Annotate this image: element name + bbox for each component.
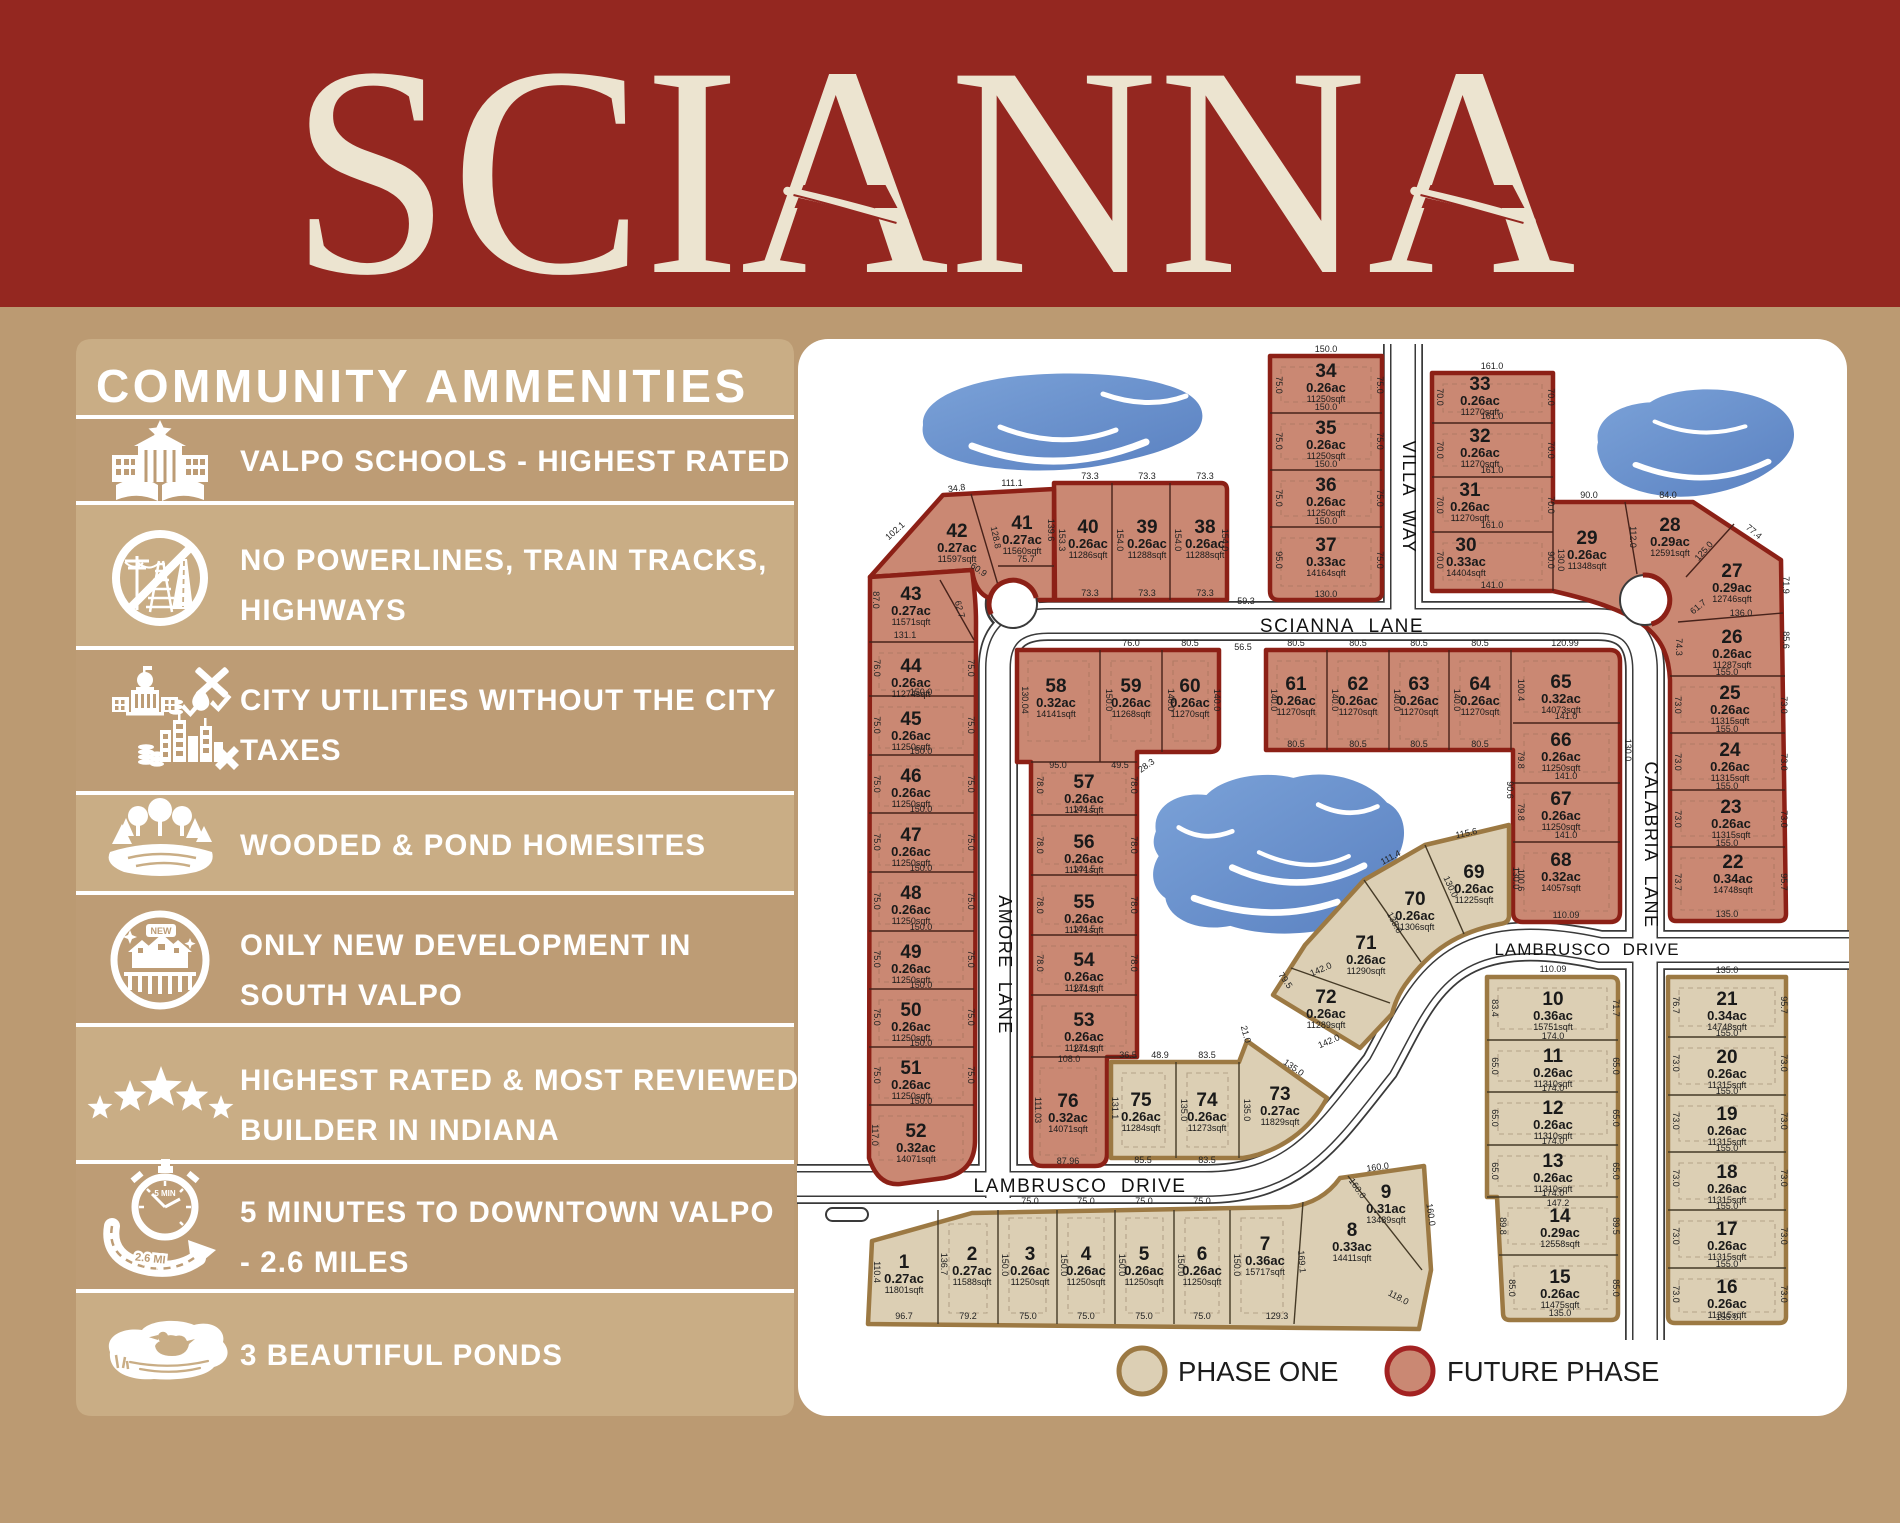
svg-text:73.7: 73.7 (1673, 873, 1683, 891)
svg-text:169.1: 169.1 (1296, 1250, 1308, 1273)
svg-text:150.0: 150.0 (1315, 402, 1338, 412)
svg-text:0.26ac: 0.26ac (1187, 1109, 1227, 1124)
svg-text:15: 15 (1549, 1267, 1571, 1288)
svg-text:62: 62 (1347, 674, 1368, 695)
svg-text:73.0: 73.0 (1779, 753, 1789, 771)
svg-text:32: 32 (1469, 426, 1490, 447)
svg-text:0.26ac: 0.26ac (891, 902, 931, 917)
svg-text:75.0: 75.0 (966, 1066, 976, 1084)
svg-text:49.5: 49.5 (1111, 760, 1129, 770)
svg-text:73.0: 73.0 (1671, 1054, 1681, 1072)
svg-text:CALABRIA LANE: CALABRIA LANE (1641, 761, 1661, 928)
svg-text:135.0: 135.0 (1242, 1099, 1252, 1122)
svg-text:155.0: 155.0 (1716, 781, 1739, 791)
svg-text:150.0: 150.0 (910, 980, 933, 990)
svg-text:80.5: 80.5 (1287, 739, 1305, 749)
svg-text:0.26ac: 0.26ac (1533, 1065, 1573, 1080)
svg-text:155.0: 155.0 (1716, 724, 1739, 734)
svg-text:0.33ac: 0.33ac (1306, 554, 1346, 569)
svg-text:11250sqft: 11250sqft (1011, 1277, 1050, 1287)
svg-text:0.26ac: 0.26ac (1710, 702, 1750, 717)
svg-text:75.0: 75.0 (966, 950, 976, 968)
svg-text:10: 10 (1542, 989, 1563, 1010)
svg-text:5: 5 (1139, 1244, 1150, 1265)
svg-text:130.0: 130.0 (1315, 589, 1338, 599)
svg-text:12746sqft: 12746sqft (1712, 594, 1752, 604)
svg-text:141.0: 141.0 (1555, 771, 1578, 781)
svg-text:110.09: 110.09 (1540, 964, 1567, 974)
svg-text:38: 38 (1194, 517, 1215, 538)
svg-text:139.6: 139.6 (1046, 519, 1056, 542)
svg-text:90.6: 90.6 (1505, 781, 1515, 799)
svg-text:12558sqft: 12558sqft (1540, 1239, 1580, 1249)
svg-text:76: 76 (1057, 1091, 1078, 1112)
svg-text:25: 25 (1719, 683, 1741, 704)
svg-text:65.0: 65.0 (1611, 1109, 1621, 1127)
svg-text:14057sqft: 14057sqft (1541, 883, 1581, 893)
svg-text:11829sqft: 11829sqft (1261, 1117, 1300, 1127)
svg-text:75.0: 75.0 (1135, 1196, 1153, 1206)
svg-text:150.0: 150.0 (910, 746, 933, 756)
svg-text:78.0: 78.0 (1129, 836, 1139, 854)
svg-text:3: 3 (1025, 1244, 1036, 1265)
svg-text:131.1: 131.1 (894, 630, 917, 640)
svg-text:45: 45 (900, 709, 922, 730)
svg-text:140.0: 140.0 (1212, 689, 1222, 712)
svg-text:120.99: 120.99 (1551, 638, 1579, 648)
svg-text:161.0: 161.0 (1481, 465, 1504, 475)
svg-text:11250sqft: 11250sqft (1125, 1277, 1164, 1287)
svg-text:8: 8 (1347, 1220, 1358, 1241)
svg-text:11225sqft: 11225sqft (1455, 895, 1494, 905)
svg-text:18: 18 (1716, 1162, 1737, 1183)
svg-text:75.0: 75.0 (1019, 1311, 1037, 1321)
svg-text:90.0: 90.0 (1580, 490, 1598, 500)
svg-text:44: 44 (900, 656, 922, 677)
svg-text:154.0: 154.0 (1220, 529, 1230, 552)
svg-text:150.0: 150.0 (1059, 1254, 1069, 1277)
svg-text:14404sqft: 14404sqft (1446, 568, 1486, 578)
svg-text:150.0: 150.0 (910, 687, 933, 697)
svg-text:0.26ac: 0.26ac (1010, 1263, 1050, 1278)
svg-text:73.0: 73.0 (1779, 1169, 1789, 1187)
svg-text:14071sqft: 14071sqft (896, 1154, 936, 1164)
svg-text:70.0: 70.0 (1435, 388, 1445, 406)
svg-text:140.0: 140.0 (1392, 689, 1402, 712)
svg-text:11588sqft: 11588sqft (953, 1277, 992, 1287)
svg-text:52: 52 (905, 1121, 926, 1142)
svg-text:64: 64 (1469, 674, 1491, 695)
svg-text:75.0: 75.0 (872, 1008, 882, 1026)
svg-text:108.0: 108.0 (1058, 1054, 1081, 1064)
svg-text:0.26ac: 0.26ac (1710, 759, 1750, 774)
svg-text:0.26ac: 0.26ac (1533, 1170, 1573, 1185)
svg-text:0.26ac: 0.26ac (891, 844, 931, 859)
svg-text:14141sqft: 14141sqft (1036, 709, 1076, 719)
svg-text:1: 1 (899, 1252, 910, 1273)
svg-text:144.5: 144.5 (1073, 1044, 1096, 1054)
svg-text:150.0: 150.0 (1117, 1254, 1127, 1277)
svg-text:54: 54 (1073, 950, 1095, 971)
svg-text:75.0: 75.0 (1193, 1311, 1211, 1321)
svg-text:63: 63 (1408, 674, 1429, 695)
svg-text:0.32ac: 0.32ac (1048, 1110, 1088, 1125)
svg-text:14164sqft: 14164sqft (1306, 568, 1346, 578)
svg-text:0.26ac: 0.26ac (891, 1019, 931, 1034)
svg-text:24: 24 (1719, 740, 1741, 761)
svg-text:43: 43 (900, 584, 921, 605)
svg-text:29: 29 (1576, 528, 1597, 549)
svg-text:0.27ac: 0.27ac (952, 1263, 992, 1278)
svg-text:75.0: 75.0 (1274, 432, 1284, 450)
svg-text:SOUTH VALPO: SOUTH VALPO (240, 979, 463, 1012)
svg-text:75.0: 75.0 (966, 716, 976, 734)
svg-text:75.0: 75.0 (1021, 1196, 1039, 1206)
svg-text:AMORE LANE: AMORE LANE (995, 895, 1015, 1035)
svg-text:0.26ac: 0.26ac (1182, 1263, 1222, 1278)
svg-text:ONLY NEW DEVELOPMENT IN: ONLY NEW DEVELOPMENT IN (240, 929, 691, 962)
svg-text:90.0: 90.0 (1546, 551, 1556, 569)
svg-text:0.26ac: 0.26ac (1533, 1117, 1573, 1132)
svg-text:60: 60 (1179, 676, 1200, 697)
svg-text:144.5: 144.5 (1073, 864, 1096, 874)
svg-text:VILLA WAY: VILLA WAY (1399, 440, 1419, 553)
svg-text:73.3: 73.3 (1196, 471, 1214, 481)
svg-text:NO POWERLINES, TRAIN TRACKS,: NO POWERLINES, TRAIN TRACKS, (240, 544, 767, 577)
svg-text:0.26ac: 0.26ac (1460, 693, 1500, 708)
svg-text:73.0: 73.0 (1671, 1227, 1681, 1245)
svg-text:0.29ac: 0.29ac (1712, 580, 1752, 595)
svg-text:0.26ac: 0.26ac (1567, 547, 1607, 562)
svg-text:15717sqft: 15717sqft (1245, 1267, 1285, 1277)
svg-text:150.0: 150.0 (910, 922, 933, 932)
svg-text:- 2.6 MILES: - 2.6 MILES (240, 1246, 409, 1279)
svg-text:67: 67 (1550, 789, 1571, 810)
svg-text:141.0: 141.0 (1555, 711, 1578, 721)
svg-text:73.0: 73.0 (1671, 1112, 1681, 1130)
svg-text:80.5: 80.5 (1181, 638, 1199, 648)
svg-text:0.29ac: 0.29ac (1540, 1225, 1580, 1240)
svg-text:136.7: 136.7 (939, 1253, 949, 1276)
svg-text:150.0: 150.0 (910, 1038, 933, 1048)
svg-text:150.0: 150.0 (1315, 516, 1338, 526)
svg-text:0.26ac: 0.26ac (1707, 1066, 1747, 1081)
svg-text:48: 48 (900, 883, 921, 904)
svg-text:27: 27 (1721, 561, 1742, 582)
svg-text:155.0: 155.0 (1716, 1312, 1739, 1322)
svg-text:0.36ac: 0.36ac (1245, 1253, 1285, 1268)
svg-text:75.0: 75.0 (872, 1066, 882, 1084)
svg-text:140.0: 140.0 (1269, 689, 1279, 712)
svg-text:83.4: 83.4 (1490, 999, 1500, 1017)
svg-text:40: 40 (1077, 517, 1098, 538)
svg-text:0.26ac: 0.26ac (891, 961, 931, 976)
svg-text:56.5: 56.5 (1234, 642, 1252, 652)
svg-text:136.0: 136.0 (1730, 608, 1753, 618)
svg-text:0.26ac: 0.26ac (1306, 494, 1346, 509)
svg-text:HIGHWAYS: HIGHWAYS (240, 594, 407, 627)
svg-text:75.0: 75.0 (1274, 376, 1284, 394)
svg-text:150.0: 150.0 (1315, 459, 1338, 469)
svg-text:35: 35 (1315, 418, 1337, 439)
svg-text:0.26ac: 0.26ac (1707, 1238, 1747, 1253)
svg-text:73: 73 (1269, 1084, 1290, 1105)
svg-text:0.27ac: 0.27ac (884, 1271, 924, 1286)
svg-text:155.0: 155.0 (1716, 1259, 1739, 1269)
svg-text:0.32ac: 0.32ac (1541, 869, 1581, 884)
svg-text:0.26ac: 0.26ac (891, 1077, 931, 1092)
svg-text:0.26ac: 0.26ac (1306, 1006, 1346, 1021)
svg-text:0.26ac: 0.26ac (1127, 536, 1167, 551)
svg-text:11597sqft: 11597sqft (938, 554, 977, 564)
svg-text:75.0: 75.0 (1375, 432, 1385, 450)
svg-text:56: 56 (1073, 832, 1094, 853)
svg-text:61: 61 (1285, 674, 1307, 695)
svg-text:PHASE ONE: PHASE ONE (1178, 1356, 1338, 1387)
svg-text:70.0: 70.0 (1435, 551, 1445, 569)
svg-text:LAMBRUSCO DRIVE: LAMBRUSCO DRIVE (1494, 940, 1679, 959)
svg-text:130.0: 130.0 (1556, 549, 1566, 572)
svg-text:84.0: 84.0 (1659, 490, 1677, 500)
svg-text:75.0: 75.0 (1135, 1311, 1153, 1321)
svg-text:0.26ac: 0.26ac (1395, 908, 1435, 923)
svg-text:75.0: 75.0 (872, 716, 882, 734)
svg-text:CITY UTILITIES WITHOUT THE CIT: CITY UTILITIES WITHOUT THE CITY (240, 684, 777, 717)
svg-text:65.0: 65.0 (1490, 1109, 1500, 1127)
svg-text:73.0: 73.0 (1779, 810, 1789, 828)
svg-text:0.26ac: 0.26ac (1121, 1109, 1161, 1124)
svg-text:79.2: 79.2 (959, 1311, 977, 1321)
svg-text:155.0: 155.0 (1716, 1086, 1739, 1096)
svg-text:71.9: 71.9 (1781, 576, 1791, 594)
svg-text:31: 31 (1459, 480, 1481, 501)
svg-text:28: 28 (1659, 515, 1680, 536)
svg-text:117.0: 117.0 (870, 1124, 880, 1146)
svg-text:80.5: 80.5 (1410, 638, 1428, 648)
svg-text:0.26ac: 0.26ac (1707, 1123, 1747, 1138)
svg-text:11288sqft: 11288sqft (1186, 550, 1225, 560)
svg-text:140.0: 140.0 (1452, 689, 1462, 712)
svg-text:0.26ac: 0.26ac (1460, 393, 1500, 408)
svg-text:58: 58 (1045, 676, 1066, 697)
svg-text:COMMUNITY AMMENITIES: COMMUNITY AMMENITIES (96, 360, 749, 412)
svg-text:57: 57 (1073, 772, 1094, 793)
svg-text:41: 41 (1011, 513, 1033, 534)
svg-text:0.33ac: 0.33ac (1446, 554, 1486, 569)
svg-text:78.0: 78.0 (1129, 896, 1139, 914)
svg-text:85.0: 85.0 (1507, 1279, 1517, 1297)
svg-text:95.7: 95.7 (1779, 996, 1789, 1014)
svg-text:83.5: 83.5 (1198, 1050, 1216, 1060)
svg-text:0.26ac: 0.26ac (1541, 749, 1581, 764)
svg-text:89.8: 89.8 (1498, 1217, 1508, 1235)
svg-text:141.0: 141.0 (1481, 580, 1504, 590)
svg-text:69: 69 (1463, 862, 1484, 883)
svg-text:73.0: 73.0 (1779, 1227, 1789, 1245)
svg-text:0.26ac: 0.26ac (1306, 437, 1346, 452)
svg-text:154.0: 154.0 (1173, 529, 1183, 552)
svg-text:80.5: 80.5 (1349, 638, 1367, 648)
svg-text:21: 21 (1716, 989, 1738, 1010)
svg-text:0.26ac: 0.26ac (1064, 1029, 1104, 1044)
svg-text:78.0: 78.0 (1129, 954, 1139, 972)
svg-text:150.0: 150.0 (1232, 1254, 1242, 1277)
svg-text:37: 37 (1315, 535, 1336, 556)
svg-text:76.0: 76.0 (872, 659, 882, 677)
svg-text:17: 17 (1716, 1219, 1737, 1240)
svg-text:0.34ac: 0.34ac (1707, 1008, 1747, 1023)
svg-text:65.0: 65.0 (1490, 1057, 1500, 1075)
svg-text:0.32ac: 0.32ac (1541, 691, 1581, 706)
svg-text:135.0: 135.0 (1716, 909, 1739, 919)
svg-text:161.0: 161.0 (1481, 361, 1504, 371)
svg-text:130.04: 130.04 (1020, 686, 1030, 714)
svg-text:89.5: 89.5 (1611, 1217, 1621, 1235)
svg-text:144.5: 144.5 (1073, 924, 1096, 934)
svg-text:144.5: 144.5 (1073, 804, 1096, 814)
svg-text:22: 22 (1722, 852, 1743, 873)
svg-text:26: 26 (1721, 627, 1742, 648)
svg-text:75.0: 75.0 (966, 833, 976, 851)
svg-text:150.0: 150.0 (1176, 1254, 1186, 1277)
svg-text:85.5: 85.5 (1134, 1155, 1152, 1165)
svg-text:12: 12 (1542, 1098, 1563, 1119)
svg-text:75.0: 75.0 (1375, 376, 1385, 394)
svg-text:14: 14 (1549, 1206, 1571, 1227)
svg-text:130.0: 130.0 (1511, 867, 1521, 890)
svg-text:48.9: 48.9 (1151, 1050, 1169, 1060)
svg-text:11270sqft: 11270sqft (1400, 707, 1439, 717)
svg-text:100.4: 100.4 (1516, 679, 1526, 702)
svg-text:130.0: 130.0 (1623, 739, 1633, 762)
svg-text:73.0: 73.0 (1779, 1285, 1789, 1303)
svg-text:75.0: 75.0 (1375, 551, 1385, 569)
svg-text:49: 49 (900, 942, 921, 963)
svg-text:0.26ac: 0.26ac (1124, 1263, 1164, 1278)
svg-text:0.26ac: 0.26ac (1541, 808, 1581, 823)
svg-text:73.3: 73.3 (1081, 471, 1099, 481)
svg-text:12591sqft: 12591sqft (1650, 548, 1690, 558)
svg-text:110.09: 110.09 (1553, 910, 1580, 920)
svg-text:78.0: 78.0 (1035, 836, 1045, 854)
svg-text:129.3: 129.3 (1266, 1311, 1289, 1321)
svg-text:80.5: 80.5 (1471, 638, 1489, 648)
svg-text:0.26ac: 0.26ac (1707, 1296, 1747, 1311)
svg-text:73.3: 73.3 (1138, 471, 1156, 481)
svg-text:79.8: 79.8 (1516, 751, 1526, 769)
svg-text:144.5: 144.5 (1073, 984, 1096, 994)
svg-text:66: 66 (1550, 730, 1571, 751)
svg-text:75.0: 75.0 (1077, 1196, 1095, 1206)
svg-text:75.0: 75.0 (872, 892, 882, 910)
svg-text:0.26ac: 0.26ac (1707, 1181, 1747, 1196)
svg-text:65.0: 65.0 (1611, 1057, 1621, 1075)
svg-text:150.0: 150.0 (910, 804, 933, 814)
svg-text:74: 74 (1196, 1090, 1218, 1111)
svg-text:0.26ac: 0.26ac (1066, 1263, 1106, 1278)
svg-text:0.31ac: 0.31ac (1366, 1201, 1406, 1216)
svg-text:4: 4 (1081, 1244, 1092, 1265)
svg-text:11571sqft: 11571sqft (892, 617, 931, 627)
svg-text:150.0: 150.0 (910, 863, 933, 873)
svg-text:0.27ac: 0.27ac (937, 540, 977, 555)
svg-text:74.3: 74.3 (1674, 638, 1684, 656)
svg-text:73.3: 73.3 (1196, 588, 1214, 598)
svg-text:153.3: 153.3 (1057, 529, 1067, 552)
svg-text:13: 13 (1542, 1151, 1563, 1172)
svg-text:0.33ac: 0.33ac (1332, 1239, 1372, 1254)
svg-text:70.0: 70.0 (1546, 496, 1556, 514)
svg-text:75.0: 75.0 (1077, 1311, 1095, 1321)
svg-text:0.26ac: 0.26ac (1338, 693, 1378, 708)
svg-text:80.5: 80.5 (1287, 638, 1305, 648)
svg-text:73.0: 73.0 (1671, 1285, 1681, 1303)
svg-text:150.0: 150.0 (910, 1096, 933, 1106)
svg-text:96.7: 96.7 (895, 1311, 913, 1321)
svg-text:174.0: 174.0 (1542, 1083, 1565, 1093)
svg-text:SCIANNA: SCIANNA (290, 5, 1576, 337)
svg-text:0.26ac: 0.26ac (1185, 536, 1225, 551)
svg-text:155.0: 155.0 (1716, 1201, 1739, 1211)
svg-text:150.0: 150.0 (1104, 689, 1114, 712)
svg-text:75.0: 75.0 (1375, 489, 1385, 507)
svg-text:34: 34 (1315, 361, 1337, 382)
svg-text:0.27ac: 0.27ac (891, 603, 931, 618)
svg-text:75.0: 75.0 (872, 833, 882, 851)
svg-text:SCIANNA LANE: SCIANNA LANE (1260, 616, 1424, 637)
svg-text:11273sqft: 11273sqft (1188, 1123, 1227, 1133)
svg-text:75.0: 75.0 (1193, 1196, 1211, 1206)
svg-text:70: 70 (1404, 889, 1425, 910)
svg-text:11348sqft: 11348sqft (1568, 561, 1607, 571)
svg-text:30: 30 (1455, 535, 1476, 556)
svg-text:73.0: 73.0 (1673, 753, 1683, 771)
svg-text:73.0: 73.0 (1779, 1112, 1789, 1130)
svg-text:80.5: 80.5 (1471, 739, 1489, 749)
svg-text:0.26ac: 0.26ac (1064, 969, 1104, 984)
svg-text:5 MINUTES TO DOWNTOWN VALPO: 5 MINUTES TO DOWNTOWN VALPO (240, 1196, 774, 1229)
svg-text:TAXES: TAXES (240, 734, 342, 767)
svg-text:11289sqft: 11289sqft (1307, 1020, 1346, 1030)
svg-text:135.0: 135.0 (1716, 965, 1739, 975)
svg-text:36.5: 36.5 (1119, 1050, 1137, 1060)
svg-text:39: 39 (1136, 517, 1157, 538)
svg-text:140.0: 140.0 (1166, 689, 1176, 712)
svg-text:174.0: 174.0 (1542, 1188, 1565, 1198)
svg-text:131.1: 131.1 (1110, 1097, 1120, 1120)
svg-text:11290sqft: 11290sqft (1347, 966, 1386, 976)
svg-text:2: 2 (967, 1244, 978, 1265)
svg-text:0.29ac: 0.29ac (1650, 534, 1690, 549)
svg-text:71: 71 (1355, 933, 1377, 954)
svg-text:14411sqft: 14411sqft (1333, 1253, 1372, 1263)
svg-text:140.0: 140.0 (1330, 689, 1340, 712)
svg-text:0.32ac: 0.32ac (1036, 695, 1076, 710)
svg-text:87.96: 87.96 (1057, 1156, 1080, 1166)
svg-text:51: 51 (900, 1058, 922, 1079)
svg-text:75.0: 75.0 (1274, 489, 1284, 507)
svg-text:0.26ac: 0.26ac (1346, 952, 1386, 967)
svg-text:11801sqft: 11801sqft (885, 1285, 924, 1295)
svg-text:5 MIN: 5 MIN (154, 1189, 176, 1198)
svg-text:0.34ac: 0.34ac (1713, 871, 1753, 886)
svg-text:0.26ac: 0.26ac (1711, 816, 1751, 831)
svg-text:11250sqft: 11250sqft (1067, 1277, 1106, 1287)
svg-text:BUILDER IN INDIANA: BUILDER IN INDIANA (240, 1114, 560, 1147)
svg-text:154.0: 154.0 (1115, 529, 1125, 552)
svg-text:0.27ac: 0.27ac (1002, 532, 1042, 547)
svg-text:150.0: 150.0 (1315, 344, 1338, 354)
